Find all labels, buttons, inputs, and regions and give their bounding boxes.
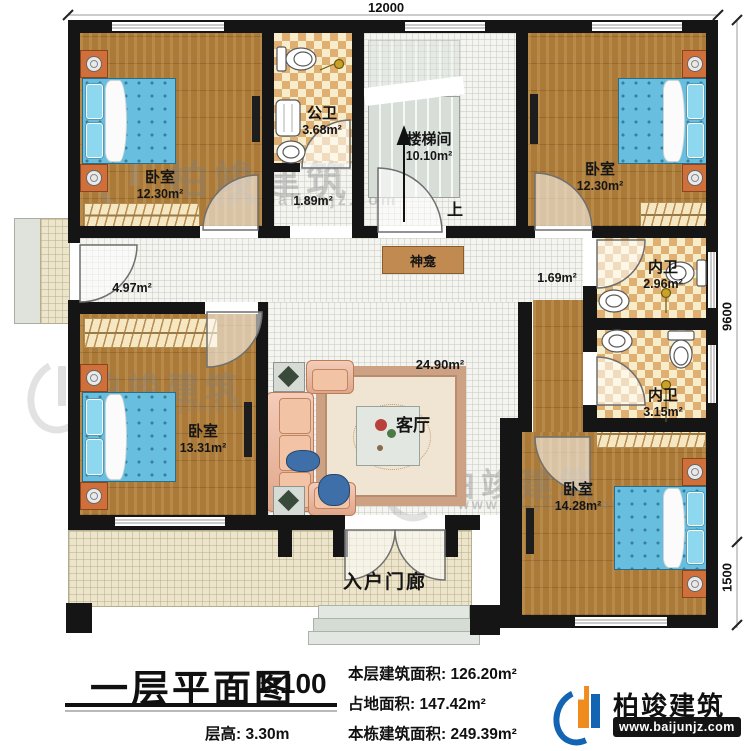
stat-total-area: 本栋建筑面积: 249.39m² (348, 722, 517, 744)
sink-basin (609, 335, 625, 347)
up-label: 上 (447, 202, 463, 219)
fixtures-and-doors-overlay (0, 0, 750, 751)
room-area: 4.97m² (112, 281, 152, 295)
room-area: 3.68m² (277, 123, 367, 137)
floor-plan-canvas: 柏竣建筑 www.baijunjz.com 柏竣建筑 www.baijunjz.… (0, 0, 750, 751)
room-area: 14.28m² (528, 499, 628, 513)
room-area: 3.15m² (626, 405, 700, 419)
door-bedroom-bottom-left (207, 312, 262, 367)
room-label-public-bath: 公卫 3.68m² (277, 106, 367, 137)
toilet-bowl (674, 347, 688, 365)
room-name: 内卫 (626, 388, 700, 405)
sink-basin (606, 295, 622, 307)
dimension-right-upper: 9600 (720, 282, 735, 352)
room-label-ensuite-top: 内卫 2.96m² (626, 260, 700, 291)
stat-label: 本栋建筑面积: (348, 726, 446, 743)
brand-logo-building-blue (591, 694, 600, 728)
room-name: 卧室 (153, 424, 253, 441)
stat-floor-area: 本层建筑面积: 126.20m² (348, 662, 517, 684)
room-label-bedroom-top-right: 卧室 12.30m² (550, 162, 650, 193)
stair-up-label: 上 (440, 202, 470, 220)
room-label-bedroom-top-left: 卧室 12.30m² (110, 170, 210, 201)
room-area: 1.89m² (293, 194, 333, 208)
room-area: 12.30m² (110, 187, 210, 201)
room-label-bedroom-bottom-left: 卧室 13.31m² (153, 424, 253, 455)
room-name: 卧室 (110, 170, 210, 187)
stat-value: 126.20m² (450, 666, 516, 683)
toilet-tank (668, 331, 694, 340)
sink-basin (283, 146, 299, 158)
toilet-tank (277, 47, 286, 71)
toilet-bowl (294, 52, 312, 66)
room-area: 10.10m² (383, 149, 475, 163)
room-name: 客厅 (396, 416, 430, 435)
stat-label: 占地面积: (348, 696, 415, 713)
room-name: 卧室 (550, 162, 650, 179)
room-area: 12.30m² (550, 179, 650, 193)
room-name: 入户门廊 (343, 572, 427, 593)
room-area: 2.96m² (626, 277, 700, 291)
room-label-bedroom-bottom-right: 卧室 14.28m² (528, 482, 628, 513)
room-label-living-area: 24.90m² (398, 358, 482, 373)
room-label-ensuite-bottom: 内卫 3.15m² (626, 388, 700, 419)
room-name: 楼梯间 (383, 132, 475, 149)
brand-url: www.baijunjz.com (613, 717, 741, 737)
shower-valve-icon (335, 60, 344, 69)
room-name: 公卫 (277, 106, 367, 123)
door-stairwell (378, 168, 442, 232)
stat-footprint-area: 占地面积: 147.42m² (348, 692, 486, 714)
room-area: 1.69m² (537, 271, 577, 285)
dimension-top: 12000 (368, 0, 404, 15)
room-name: 内卫 (626, 260, 700, 277)
room-label-hallway: 4.97m² (96, 281, 168, 295)
door-bedroom-top-left (203, 175, 258, 230)
room-label-stairwell: 楼梯间 10.10m² (383, 132, 475, 163)
room-area: 24.90m² (416, 357, 464, 372)
stat-value: 249.39m² (450, 726, 516, 743)
stat-value: 147.42m² (419, 696, 485, 713)
room-label-vestibule: 1.89m² (272, 194, 354, 208)
room-label-passage: 1.69m² (518, 271, 596, 285)
room-label-porch: 入户门廊 (300, 572, 470, 593)
title-underline (65, 703, 337, 707)
dimension-right-lower: 1500 (720, 543, 735, 613)
room-name: 卧室 (528, 482, 628, 499)
plan-scale: 1:100 (255, 668, 327, 700)
title-underline-thin (65, 710, 337, 712)
room-label-living: 客厅 (378, 416, 448, 435)
stat-floor-height: 层高: 3.30m (205, 722, 289, 744)
stat-label: 本层建筑面积: (348, 666, 446, 683)
room-area: 13.31m² (153, 441, 253, 455)
